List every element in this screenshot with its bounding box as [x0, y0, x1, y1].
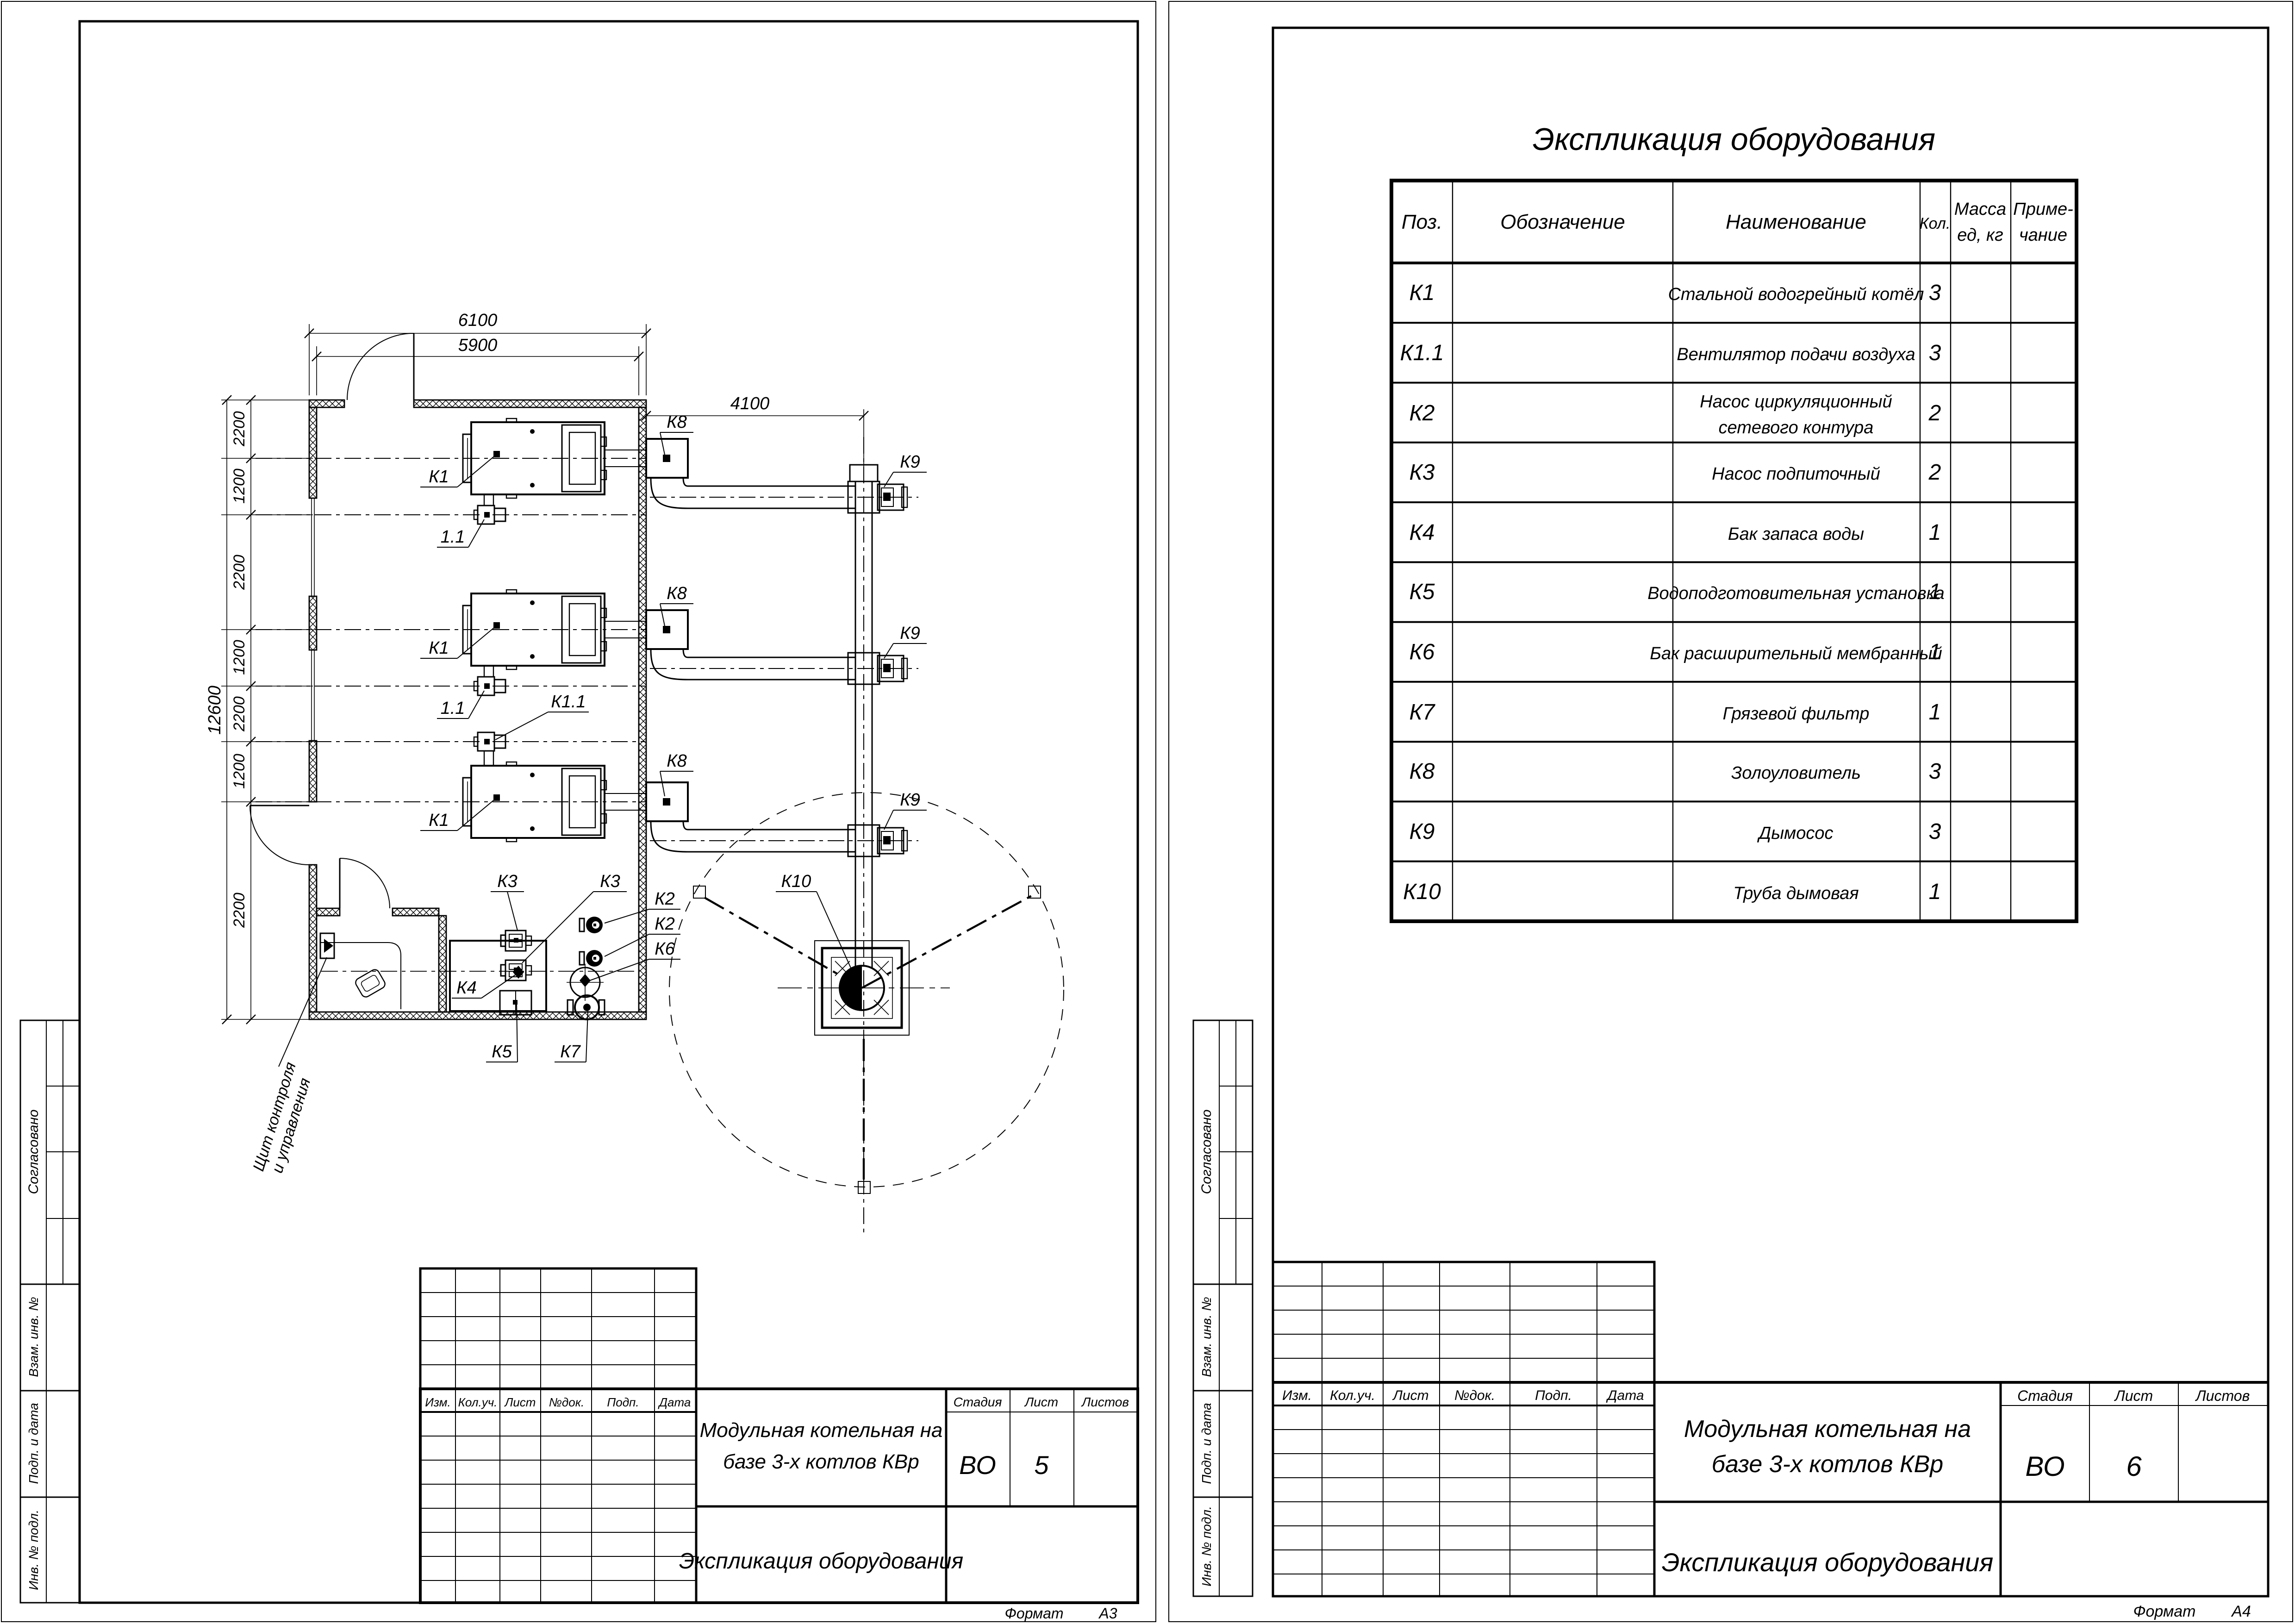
- floor-plan: 6100 5900 4100: [205, 311, 1064, 1233]
- label-k9-1: К9: [884, 452, 927, 487]
- svg-text:К8: К8: [667, 584, 687, 603]
- tb-right-project-1: Модульная котельная на: [1684, 1416, 1971, 1443]
- tb-left-sheet-num: 5: [1034, 1450, 1049, 1480]
- svg-text:К5: К5: [1409, 580, 1435, 604]
- fan-2: [474, 666, 505, 695]
- svg-text:К9: К9: [1409, 819, 1435, 844]
- sidebar-podp-left: Подп. и дата: [26, 1403, 41, 1484]
- flue-row-2: [605, 610, 918, 684]
- th-name: Наименование: [1726, 211, 1866, 233]
- plan-svg: 6100 5900 4100: [2, 2, 1157, 1622]
- tb-right-list: Лист: [1392, 1388, 1428, 1403]
- svg-text:3: 3: [1929, 341, 1941, 365]
- plan-labels: К1 К1 К1 1.1 1.1 К1.1: [420, 412, 927, 1062]
- dim-4100: 4100: [730, 394, 770, 413]
- th-mass-1: Масса: [1954, 200, 2006, 219]
- sidebar-left-sheet: Согласовано Взам. инв. № Подп. и дата Ин…: [20, 1020, 80, 1603]
- label-k1-3: К1: [420, 798, 496, 831]
- equipment-table: Поз. Обозначение Наименование Кол. Масса…: [1391, 181, 2077, 921]
- svg-text:1: 1: [1929, 700, 1941, 725]
- format-value-left: А3: [1098, 1605, 1117, 1622]
- table-row: К2 Насос циркуляционный сетевого контура…: [1409, 392, 1941, 437]
- svg-text:К9: К9: [900, 452, 920, 472]
- svg-text:сетевого контура: сетевого контура: [1719, 418, 1874, 437]
- svg-text:Водоподготовительная установка: Водоподготовительная установка: [1647, 584, 1945, 603]
- table-row: К9 Дымосос 3: [1409, 819, 1941, 844]
- svg-text:2: 2: [1928, 460, 1941, 485]
- spec-title: Экспликация оборудования: [1533, 122, 1935, 157]
- door-top: [347, 333, 414, 400]
- svg-text:К9: К9: [900, 790, 920, 810]
- tb-right-podp: Подп.: [1535, 1388, 1572, 1403]
- svg-text:К8: К8: [667, 751, 687, 771]
- titleblock-right: Изм. Кол.уч. Лист №док. Подп. Дата Модул…: [1273, 1262, 2268, 1620]
- table-row: К5 Водоподготовительная установка 1: [1409, 580, 1945, 604]
- dim-chain-3: 1200: [231, 640, 248, 675]
- svg-text:1: 1: [1929, 640, 1941, 664]
- sidebar-inv-right: Инв. № подл.: [1199, 1506, 1214, 1587]
- dim-top: 6100 5900 4100: [305, 311, 868, 472]
- frame-left-sheet: [80, 21, 1138, 1603]
- svg-text:К10: К10: [1403, 880, 1441, 904]
- svg-text:Бак расширительный мембранный: Бак расширительный мембранный: [1650, 644, 1942, 663]
- svg-text:Насос подпиточный: Насос подпиточный: [1712, 464, 1880, 484]
- fan-1: [474, 494, 505, 524]
- sidebar-vzam-left: Взам. инв. №: [26, 1297, 41, 1377]
- svg-text:К10: К10: [781, 872, 811, 891]
- tb-left-podp: Подп.: [607, 1395, 639, 1409]
- svg-text:К3: К3: [497, 872, 518, 891]
- svg-text:Грязевой фильтр: Грязевой фильтр: [1723, 704, 1870, 724]
- counter: [320, 943, 401, 1009]
- svg-text:К8: К8: [667, 412, 687, 432]
- sidebar-agreed-right: Согласовано: [1199, 1110, 1214, 1194]
- th-pos: Поз.: [1402, 211, 1443, 233]
- format-value-right: А4: [2231, 1603, 2251, 1620]
- window-1: [309, 498, 317, 596]
- svg-text:Стальной водогрейный котёл: Стальной водогрейный котёл: [1668, 285, 1924, 304]
- svg-text:К7: К7: [560, 1042, 581, 1062]
- table-row: К7 Грязевой фильтр 1: [1409, 700, 1941, 725]
- table-row: К6 Бак расширительный мембранный 1: [1409, 640, 1942, 664]
- tb-left-stage-label: Стадия: [954, 1395, 1002, 1409]
- th-note-1: Приме-: [2013, 200, 2073, 219]
- svg-text:К1.1: К1.1: [551, 692, 586, 712]
- table-rows: К1 Стальной водогрейный котёл 3 К1.1 Вен…: [1400, 281, 1944, 904]
- label-k9-3: К9: [884, 790, 927, 830]
- label-k11: К1.1: [495, 692, 589, 740]
- svg-text:1: 1: [1929, 580, 1941, 604]
- sidebar-right-sheet: Согласовано Взам. инв. № Подп. и дата Ин…: [1193, 1020, 1253, 1596]
- svg-text:Насос циркуляционный: Насос циркуляционный: [1700, 392, 1892, 412]
- svg-text:К2: К2: [1409, 401, 1435, 425]
- svg-text:К2: К2: [655, 914, 675, 934]
- tb-left-sheets-label: Листов: [1081, 1395, 1129, 1409]
- tb-right-data: Дата: [1606, 1388, 1644, 1403]
- sidebar-agreed-left: Согласовано: [26, 1110, 41, 1194]
- tb-left-sheet-label: Лист: [1024, 1395, 1058, 1409]
- door-vestibule: [340, 858, 390, 908]
- th-designation: Обозначение: [1500, 211, 1625, 233]
- drawing-stage: 6100 5900 4100: [0, 0, 2295, 1624]
- table-row: К10 Труба дымовая 1: [1403, 880, 1941, 904]
- tb-right-doc: Экспликация оборудования: [1662, 1548, 1994, 1577]
- dim-chain-2: 2200: [231, 555, 248, 590]
- svg-text:К4: К4: [1409, 520, 1435, 545]
- dim-6100: 6100: [458, 311, 498, 330]
- tb-left-doc: Экспликация оборудования: [679, 1549, 963, 1574]
- drawing-canvas: 6100 5900 4100: [0, 0, 2295, 1624]
- tb-right-sheet-label: Лист: [2114, 1387, 2153, 1404]
- svg-text:К1: К1: [429, 638, 449, 658]
- sink: [354, 968, 387, 999]
- svg-text:К1: К1: [429, 467, 449, 487]
- tb-right-project-2: базе 3-х котлов КВр: [1712, 1451, 1943, 1478]
- svg-text:3: 3: [1929, 819, 1941, 844]
- tb-right-sheet-num: 6: [2126, 1451, 2142, 1482]
- titleblock-left: Изм. Кол.уч. Лист №док. Подп. Дата Модул…: [420, 1268, 1138, 1622]
- dim-chain-6: 2200: [231, 893, 248, 928]
- label-k6: К6: [590, 939, 680, 981]
- svg-text:К6: К6: [1409, 640, 1435, 664]
- label-k3-2: К3: [522, 872, 627, 963]
- spec-svg: Экспликация оборудования Поз. Обозначени…: [1169, 2, 2294, 1622]
- tb-right-ndok: №док.: [1454, 1388, 1495, 1403]
- svg-text:1.1: 1.1: [441, 699, 465, 718]
- window-2: [309, 650, 317, 741]
- svg-text:К3: К3: [600, 872, 620, 891]
- svg-text:2: 2: [1928, 401, 1941, 425]
- control-panel: [320, 933, 334, 958]
- tb-right-koluch: Кол.уч.: [1330, 1388, 1375, 1403]
- tb-right-sheets-label: Листов: [2195, 1387, 2250, 1404]
- svg-text:1: 1: [1929, 880, 1941, 904]
- tb-right-izm: Изм.: [1282, 1388, 1312, 1403]
- svg-text:Золоуловитель: Золоуловитель: [1731, 763, 1861, 783]
- chimney: [669, 793, 1064, 1193]
- svg-text:Труба дымовая: Труба дымовая: [1733, 884, 1858, 903]
- flue-row-1: [605, 439, 918, 513]
- tb-left-izm: Изм.: [425, 1395, 450, 1409]
- label-k3-1: К3: [491, 872, 524, 931]
- svg-text:Дымосос: Дымосос: [1757, 824, 1833, 843]
- flue-collector: [850, 437, 878, 1233]
- svg-text:К6: К6: [655, 939, 675, 959]
- label-k9-2: К9: [884, 624, 927, 658]
- svg-text:К1: К1: [429, 811, 449, 830]
- equipment-room: [320, 917, 605, 1019]
- pump-k2-2: [580, 950, 603, 967]
- tb-right-stage: ВО: [2025, 1451, 2064, 1482]
- dim-chain-4: 2200: [231, 696, 248, 732]
- th-mass-2: ед, кг: [1957, 225, 2003, 245]
- tb-left-koluch: Кол.уч.: [458, 1395, 498, 1409]
- sidebar-podp-right: Подп. и дата: [1199, 1403, 1214, 1484]
- dim-5900: 5900: [458, 336, 498, 355]
- th-note-2: чание: [2019, 225, 2067, 245]
- tb-right-stage-label: Стадия: [2017, 1387, 2073, 1404]
- table-row: К8 Золоуловитель 3: [1409, 759, 1941, 784]
- table-row: К1 Стальной водогрейный котёл 3: [1409, 281, 1941, 305]
- tb-left-ndok: №док.: [549, 1395, 585, 1409]
- th-qty: Кол.: [1920, 215, 1951, 232]
- svg-text:1.1: 1.1: [441, 527, 465, 547]
- svg-text:Бак запаса воды: Бак запаса воды: [1728, 525, 1864, 544]
- sheet-specification: Экспликация оборудования Поз. Обозначени…: [1168, 1, 2293, 1622]
- format-label-right: Формат: [2133, 1603, 2195, 1620]
- tb-left-data: Дата: [658, 1395, 691, 1409]
- dim-12600: 12600: [205, 686, 225, 735]
- label-k1-2: К1: [420, 626, 496, 658]
- table-header: Поз. Обозначение Наименование Кол. Масса…: [1402, 200, 2073, 245]
- sidebar-inv-left: Инв. № подл.: [26, 1510, 41, 1590]
- svg-text:1: 1: [1929, 520, 1941, 545]
- sheet-plan: 6100 5900 4100: [1, 1, 1156, 1622]
- dim-chain-left: 2200 1200 2200 1200 2200 1200 2200 12600: [205, 395, 313, 1024]
- svg-text:К1: К1: [1409, 281, 1435, 305]
- label-k1-1: К1: [420, 455, 496, 487]
- format-label-left: Формат: [1004, 1605, 1063, 1622]
- tb-left-project-1: Модульная котельная на: [700, 1419, 943, 1442]
- table-row: К3 Насос подпиточный 2: [1409, 460, 1941, 485]
- pump-k2-1: [580, 917, 603, 933]
- flue-row-3: [605, 782, 918, 856]
- tb-left-stage: ВО: [959, 1450, 996, 1480]
- svg-text:3: 3: [1929, 281, 1941, 305]
- svg-text:К9: К9: [900, 624, 920, 643]
- svg-text:К8: К8: [1409, 759, 1435, 784]
- svg-text:К3: К3: [1409, 460, 1435, 485]
- door-left-wall: [250, 806, 309, 865]
- label-k4: К4: [452, 974, 517, 998]
- dim-chain-5: 1200: [231, 754, 248, 789]
- svg-text:К7: К7: [1409, 700, 1436, 725]
- tb-left-list: Лист: [504, 1395, 536, 1409]
- table-row: К4 Бак запаса воды 1: [1409, 520, 1941, 545]
- dim-chain-1: 1200: [231, 468, 248, 504]
- table-row: К1.1 Вентилятор подачи воздуха 3: [1400, 341, 1941, 365]
- sidebar-vzam-right: Взам. инв. №: [1199, 1297, 1214, 1377]
- tb-left-project-2: базе 3-х котлов КВр: [723, 1450, 919, 1473]
- svg-text:К5: К5: [492, 1042, 512, 1062]
- svg-text:К1.1: К1.1: [1400, 341, 1444, 365]
- svg-text:К4: К4: [456, 978, 477, 998]
- dim-chain-0: 2200: [231, 411, 248, 447]
- svg-text:3: 3: [1929, 759, 1941, 784]
- svg-text:К2: К2: [655, 889, 675, 909]
- svg-text:Вентилятор подачи воздуха: Вентилятор подачи воздуха: [1677, 345, 1915, 364]
